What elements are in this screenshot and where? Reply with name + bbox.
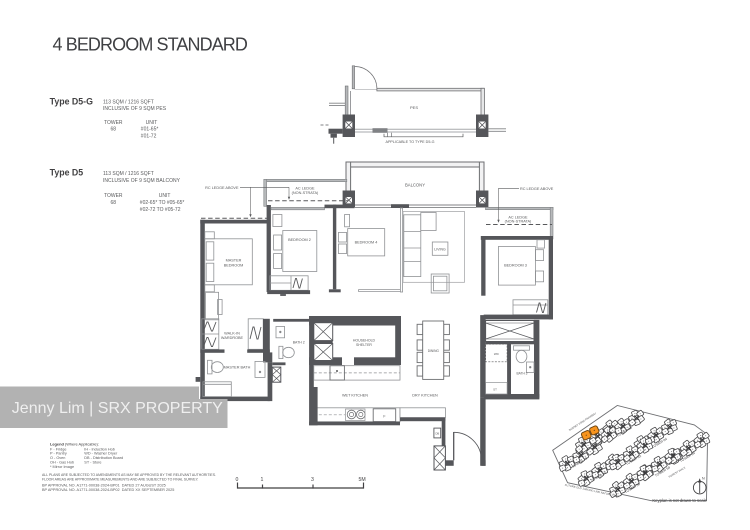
svg-text:ALL PLANS ARE SUBJECTED TO AME: ALL PLANS ARE SUBJECTED TO AMENDMENTS AS…	[42, 473, 216, 477]
svg-text:DRY KITCHEN: DRY KITCHEN	[412, 393, 438, 397]
svg-text:TOWER: TOWER	[104, 193, 123, 199]
svg-text:ST - Store: ST - Store	[84, 461, 101, 465]
svg-text:68: 68	[111, 200, 117, 206]
svg-text:BATH 3: BATH 3	[517, 371, 528, 375]
svg-text:BATH 2: BATH 2	[293, 340, 305, 344]
svg-text:(NON-STRATA): (NON-STRATA)	[505, 220, 532, 224]
svg-text:Keyplan is not drawn to scale: Keyplan is not drawn to scale	[652, 498, 707, 503]
svg-text:5M: 5M	[359, 477, 366, 483]
svg-text:68: 68	[111, 127, 117, 133]
svg-text:WET KITCHEN: WET KITCHEN	[342, 393, 368, 397]
svg-text:APPLICABLE TO TYPE D5-G: APPLICABLE TO TYPE D5-G	[386, 140, 435, 144]
svg-text:#01-65*: #01-65*	[141, 127, 159, 133]
svg-text:P - Pantry: P - Pantry	[50, 452, 67, 456]
svg-text:4 BEDROOM STANDARD: 4 BEDROOM STANDARD	[53, 35, 248, 55]
svg-text:WALK-IN: WALK-IN	[224, 331, 240, 335]
svg-text:MASTER BATH: MASTER BATH	[224, 365, 251, 369]
svg-text:FLOOR AREAS ARE APPROXIMATE ME: FLOOR AREAS ARE APPROXIMATE MEASUREMENTS…	[42, 478, 199, 482]
svg-text:LIVING: LIVING	[434, 248, 446, 252]
svg-text:113 SQM / 1216 SQFT: 113 SQM / 1216 SQFT	[103, 171, 154, 177]
svg-text:ST: ST	[493, 387, 497, 391]
svg-text:Type D5: Type D5	[50, 167, 84, 177]
svg-text:OH - Gas Hob: OH - Gas Hob	[50, 461, 74, 465]
svg-text:RC LEDGE ABOVE: RC LEDGE ABOVE	[520, 187, 554, 191]
svg-text:Jenny Lim | SRX PROPERTY: Jenny Lim | SRX PROPERTY	[12, 400, 223, 417]
svg-text:1: 1	[261, 477, 264, 483]
svg-text:#02-72 TO #05-72: #02-72 TO #05-72	[140, 207, 181, 213]
svg-text:O - Oven: O - Oven	[50, 456, 65, 460]
svg-text:DINING: DINING	[428, 349, 440, 353]
svg-text:TOWER: TOWER	[104, 120, 123, 126]
svg-text:BP APPROVAL NO. A1771-00038-20: BP APPROVAL NO. A1771-00038-2024-BP01 DA…	[42, 484, 166, 488]
svg-text:WD - Washer Dryer: WD - Washer Dryer	[84, 452, 118, 456]
svg-text:MASTER: MASTER	[226, 259, 242, 263]
svg-text:Legend (Where Applicable):: Legend (Where Applicable):	[50, 441, 99, 446]
svg-text:WARDROBE: WARDROBE	[221, 336, 244, 340]
svg-text:UNIT: UNIT	[146, 120, 158, 126]
svg-text:F: F	[383, 414, 385, 418]
svg-text:0: 0	[236, 477, 239, 483]
svg-text:BP APPROVAL NO. A1771-00038-20: BP APPROVAL NO. A1771-00038-2024-BP02 DA…	[42, 488, 174, 492]
svg-text:#02-65* TO #05-65*: #02-65* TO #05-65*	[140, 200, 185, 206]
svg-text:DB - Distribution Board: DB - Distribution Board	[84, 456, 123, 460]
svg-text:BEDROOM: BEDROOM	[224, 263, 244, 267]
svg-text:WD: WD	[494, 352, 499, 356]
svg-text:UNIT: UNIT	[159, 193, 171, 199]
svg-text:* Mirror Image: * Mirror Image	[50, 465, 74, 469]
svg-text:113 SQM / 1216 SQFT: 113 SQM / 1216 SQFT	[103, 99, 154, 105]
svg-text:BEDROOM 3: BEDROOM 3	[504, 264, 527, 268]
svg-text:INCLUSIVE OF 9 SQM BALCONY: INCLUSIVE OF 9 SQM BALCONY	[103, 178, 181, 184]
svg-text:RC LEDGE ABOVE: RC LEDGE ABOVE	[205, 186, 239, 190]
svg-text:BEDROOM 4: BEDROOM 4	[355, 241, 378, 245]
svg-text:INCLUSIVE OF 9 SQM PES: INCLUSIVE OF 9 SQM PES	[103, 106, 167, 112]
svg-text:BEDROOM 2: BEDROOM 2	[288, 238, 311, 242]
svg-text:#01-72: #01-72	[141, 133, 157, 139]
svg-text:PES: PES	[410, 105, 418, 110]
svg-text:DB: DB	[435, 432, 439, 436]
svg-text:HOUSEHOLD: HOUSEHOLD	[353, 339, 376, 343]
svg-text:SHELTER: SHELTER	[356, 343, 372, 347]
svg-text:Type D5-G: Type D5-G	[50, 96, 93, 106]
svg-text:BALCONY: BALCONY	[405, 182, 425, 187]
svg-text:(NON-STRATA): (NON-STRATA)	[292, 191, 319, 195]
svg-text:3: 3	[311, 477, 314, 483]
svg-text:N: N	[702, 477, 705, 481]
